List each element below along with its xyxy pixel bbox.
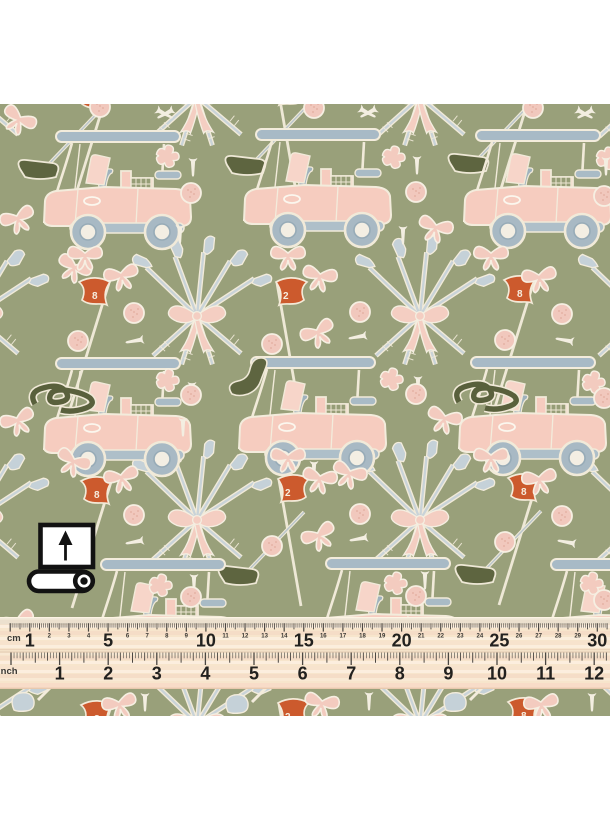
svg-text:8: 8 <box>395 664 405 684</box>
svg-text:11: 11 <box>536 664 555 684</box>
svg-text:18: 18 <box>359 634 366 640</box>
svg-text:13: 13 <box>261 634 268 640</box>
svg-text:19: 19 <box>379 634 386 640</box>
svg-text:11: 11 <box>222 634 229 640</box>
svg-text:24: 24 <box>477 634 484 640</box>
svg-text:14: 14 <box>281 634 288 640</box>
svg-text:inch: inch <box>0 666 18 677</box>
svg-text:10: 10 <box>196 631 216 651</box>
svg-text:9: 9 <box>443 664 453 684</box>
svg-text:1: 1 <box>55 664 65 684</box>
svg-text:1: 1 <box>25 631 35 651</box>
svg-text:26: 26 <box>516 634 523 640</box>
svg-text:7: 7 <box>346 664 356 684</box>
svg-text:10: 10 <box>487 664 507 684</box>
svg-text:20: 20 <box>392 631 412 651</box>
svg-text:12: 12 <box>584 664 604 684</box>
svg-text:15: 15 <box>294 631 314 651</box>
svg-text:6: 6 <box>298 664 308 684</box>
svg-text:12: 12 <box>242 634 249 640</box>
svg-text:5: 5 <box>103 631 113 651</box>
svg-text:4: 4 <box>200 664 210 684</box>
svg-text:30: 30 <box>587 631 607 651</box>
svg-text:28: 28 <box>555 634 562 640</box>
svg-text:23: 23 <box>457 634 464 640</box>
svg-text:cm: cm <box>7 633 21 644</box>
svg-text:29: 29 <box>574 634 581 640</box>
svg-text:2: 2 <box>103 664 113 684</box>
svg-text:3: 3 <box>152 664 162 684</box>
svg-text:25: 25 <box>489 631 509 651</box>
svg-text:17: 17 <box>340 634 347 640</box>
svg-text:22: 22 <box>437 634 444 640</box>
svg-text:5: 5 <box>249 664 259 684</box>
svg-text:21: 21 <box>418 634 425 640</box>
svg-text:16: 16 <box>320 634 327 640</box>
svg-text:27: 27 <box>535 634 542 640</box>
